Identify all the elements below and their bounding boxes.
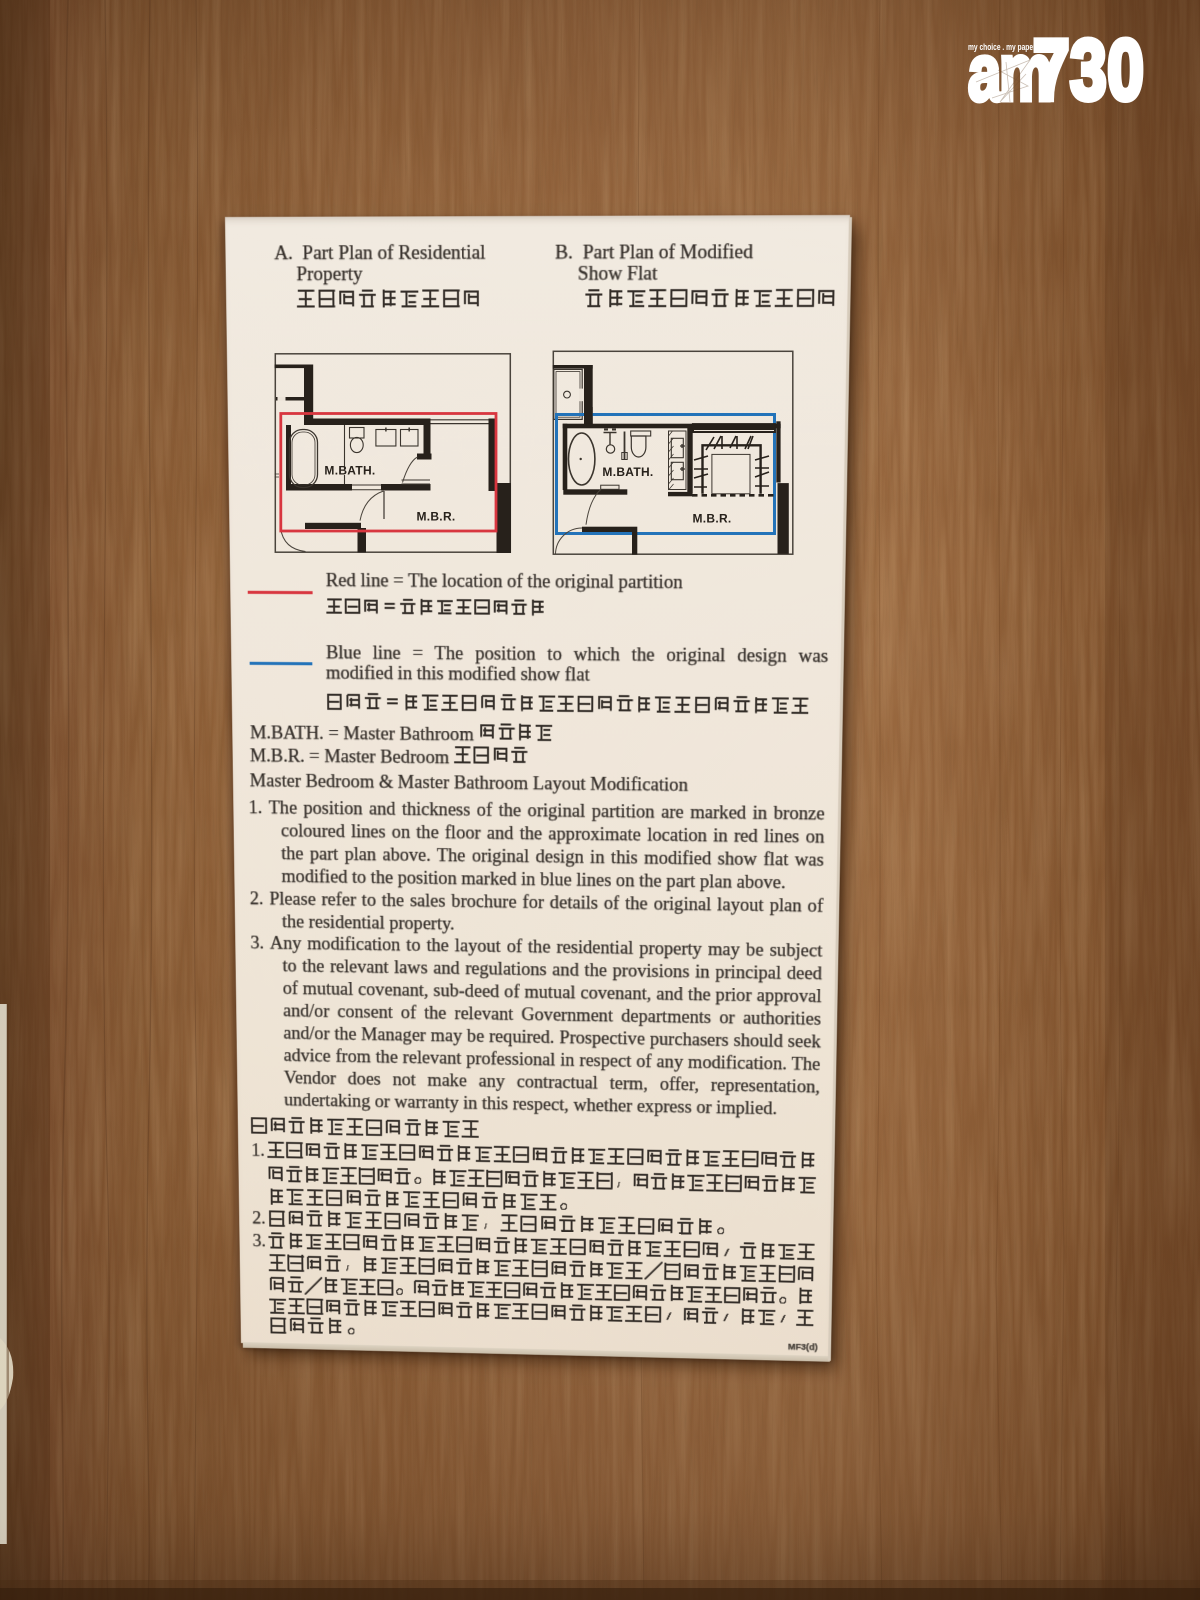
svg-text:M.BATH.: M.BATH. — [602, 465, 653, 479]
svg-text:M.B.R.: M.B.R. — [416, 510, 455, 524]
svg-text:M.BATH.: M.BATH. — [324, 464, 375, 478]
svg-text:M.B.R.: M.B.R. — [692, 512, 731, 526]
